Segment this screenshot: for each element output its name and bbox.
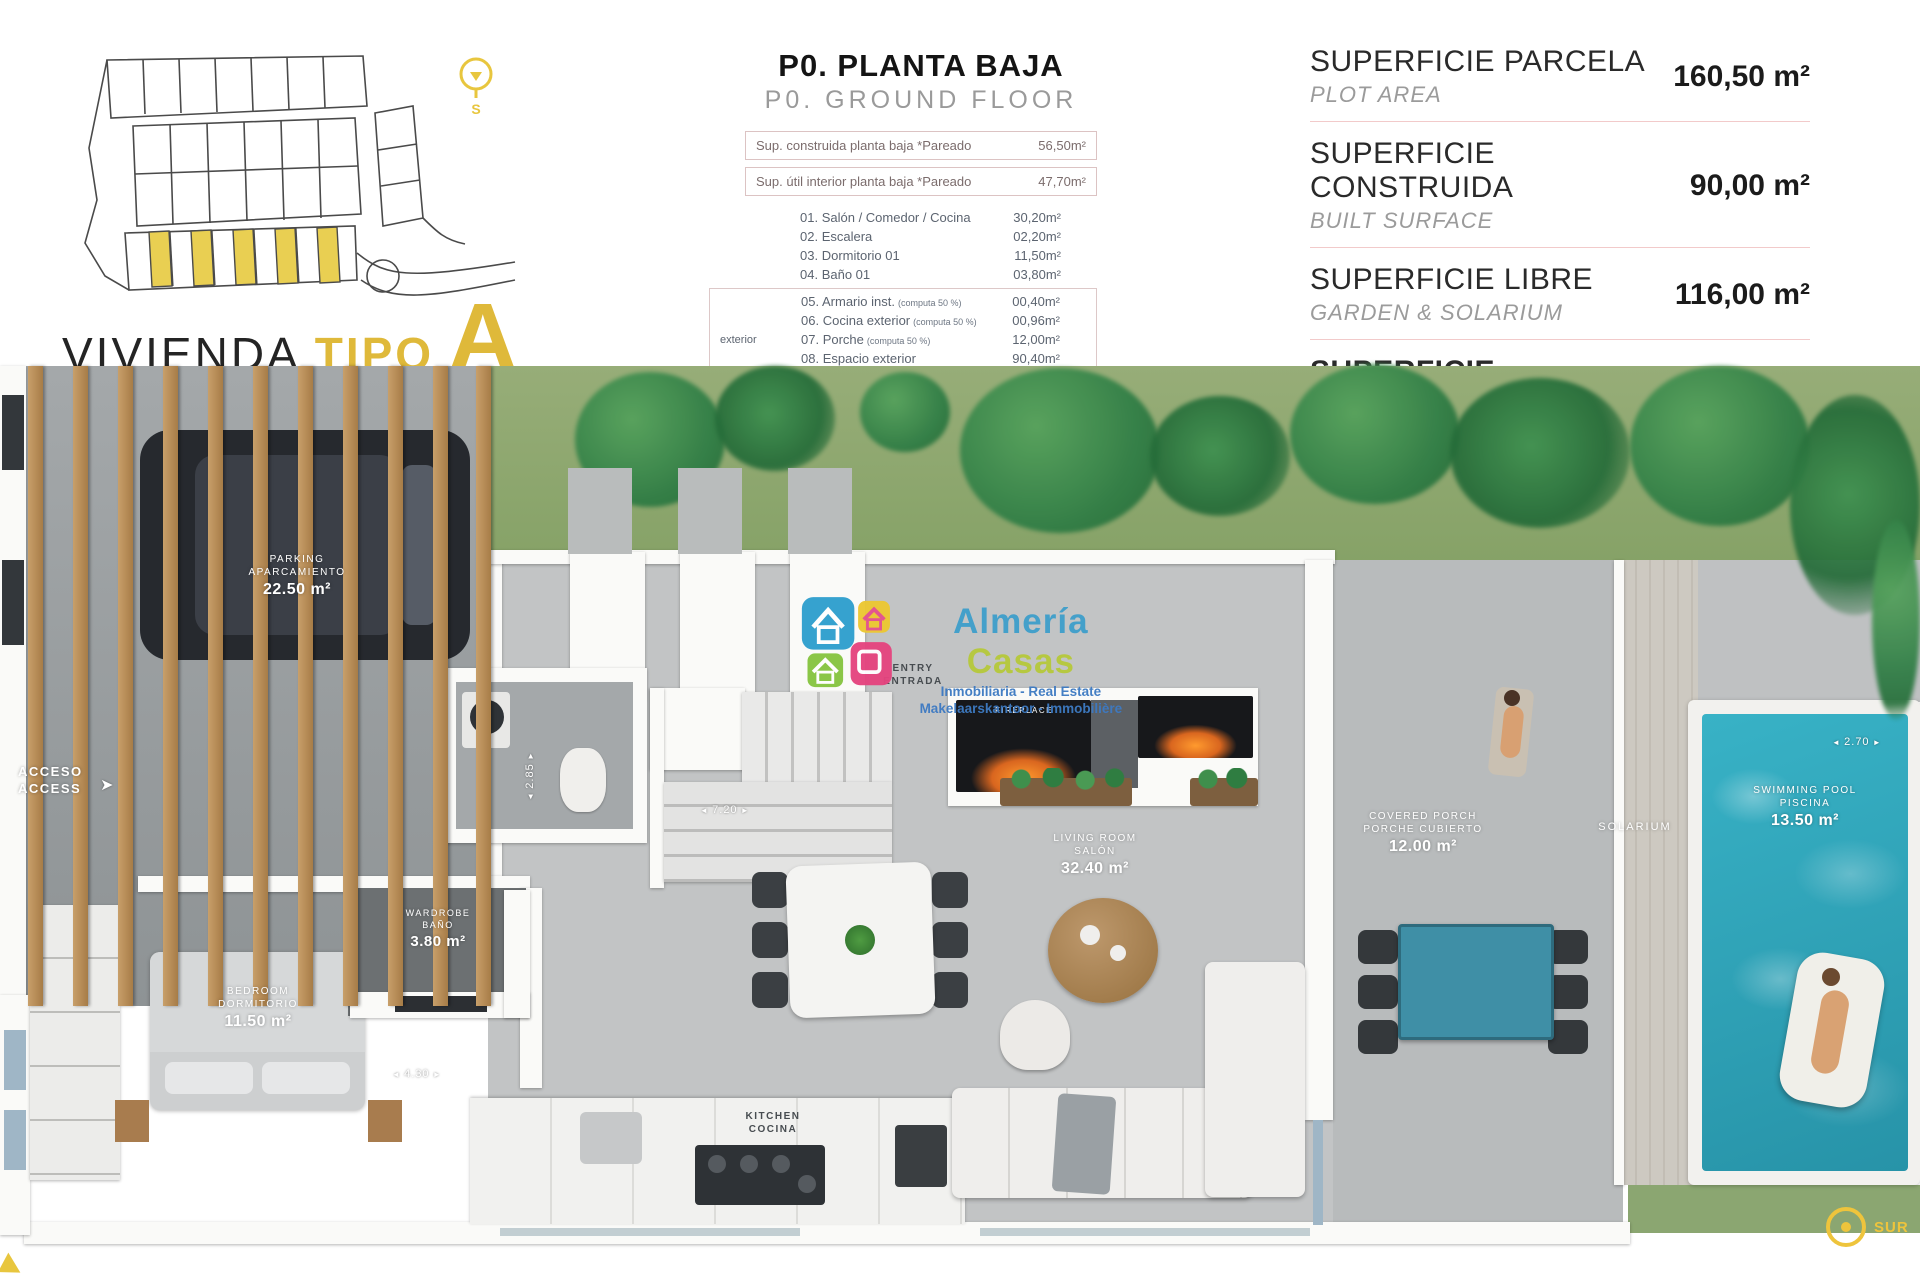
sofa-chaise (1205, 962, 1305, 1197)
dim-bedroom: 4.30 (392, 1068, 442, 1080)
toilet (560, 748, 606, 812)
lounge-chair (1000, 1000, 1070, 1070)
door-opening (2, 560, 24, 645)
solarium-label: SOLARIUM (1580, 820, 1690, 834)
entry-pad (788, 468, 852, 554)
access-arrow-icon: ➤ (100, 775, 113, 795)
room-row: 04. Baño 01 03,80m² (745, 265, 1097, 284)
tree (960, 368, 1160, 533)
pillow (262, 1062, 350, 1094)
room-row: 06. Cocina exterior(computa 50 %) 00,96m… (746, 311, 1096, 330)
entry-pad (568, 468, 632, 554)
pergola-slat (343, 366, 358, 1006)
summary-boxes: Sup. construida planta baja *Pareado 56,… (745, 131, 1097, 196)
wardrobe-label: WARDROBE BAÑO 3.80 m² (378, 908, 498, 952)
tree (1630, 366, 1810, 526)
kitchen-label: KITCHEN COCINA (728, 1110, 818, 1136)
pool-label: SWIMMING POOL PISCINA 13.50 m² (1735, 784, 1875, 832)
round-table (1048, 898, 1158, 1003)
bedroom-label: BEDROOM DORMITORIO 11.50 m² (178, 985, 338, 1033)
room-list: 01. Salón / Comedor / Cocina 30,20m² 02.… (745, 208, 1097, 392)
pillow (165, 1062, 253, 1094)
pergola-slat (118, 366, 133, 1006)
dining-chair (752, 972, 788, 1008)
surface-row: SUPERFICIE PARCELA PLOT AREA 160,50 m² (1310, 30, 1810, 121)
solarium-floor (1623, 560, 1698, 1185)
sofa-throw (1052, 1093, 1117, 1195)
pergola-slat (73, 366, 88, 1006)
table-dish (1110, 945, 1126, 961)
pergola-slat (253, 366, 268, 1006)
tree (1872, 520, 1920, 720)
floor-title-es: P0. PLANTA BAJA (745, 48, 1097, 84)
wall-living-porch (1305, 560, 1333, 1120)
surface-row: SUPERFICIE LIBRE GARDEN & SOLARIUM 116,0… (1310, 248, 1810, 339)
summary-row: Sup. útil interior planta baja *Pareado … (745, 167, 1097, 196)
svg-text:S: S (471, 101, 480, 117)
table-plant (845, 925, 875, 955)
porch-chair (1548, 930, 1588, 964)
door-opening (2, 395, 24, 470)
room-row: 05. Armario inst.(computa 50 %) 00,40m² (746, 292, 1096, 311)
stairs-wall (650, 688, 745, 770)
sliding-door-glass (1313, 1120, 1323, 1225)
dim-pool: 2.70 (1832, 736, 1882, 748)
wall-bottom (24, 1222, 1630, 1244)
car-windshield (402, 465, 436, 625)
dining-chair (752, 872, 788, 908)
exterior-label: exterior (720, 334, 757, 346)
dining-chair (752, 922, 788, 958)
stairs-wall-left (650, 688, 664, 888)
fireplace-screen-2 (1138, 696, 1253, 758)
burner (798, 1175, 816, 1193)
burner (772, 1155, 790, 1173)
pool-water (1702, 714, 1908, 1171)
table-dish (1080, 925, 1100, 945)
tree (1150, 396, 1290, 516)
porch-chair (1358, 930, 1398, 964)
measurement-table: P0. PLANTA BAJA P0. GROUND FLOOR Sup. co… (745, 48, 1097, 392)
porch-floor (1333, 560, 1623, 1235)
compass-south: SUR (1826, 1204, 1920, 1250)
wall-pillar (680, 552, 755, 700)
compass-icon (1826, 1207, 1866, 1247)
dim-stairs: 7.20 (700, 804, 750, 816)
access-label: ACCESO ACCESS (18, 764, 108, 798)
porch-chair (1548, 1020, 1588, 1054)
tree (860, 372, 950, 452)
wall-porch-solarium (1614, 560, 1624, 1185)
planter-plants (1002, 768, 1130, 790)
pergola-slat (28, 366, 43, 1006)
porch-label: COVERED PORCH PORCHE CUBIERTO 12.00 m² (1338, 810, 1508, 858)
compass-label: SUR (1874, 1219, 1909, 1236)
almeria-casas-logo (800, 592, 894, 696)
tree (1290, 364, 1460, 504)
watermark-text: Almería Casas Inmobiliaria - Real Estate… (902, 592, 1140, 712)
brochure-page: S VIVIENDA TIPO A P0. PLANTA BAJA P0. GR… (0, 0, 1920, 1280)
room-row: 07. Porche(computa 50 %) 12,00m² (746, 330, 1096, 349)
porch-table (1398, 924, 1554, 1040)
dining-chair (932, 872, 968, 908)
porch-chair (1548, 975, 1588, 1009)
entry-pad (678, 468, 742, 554)
watermark: Almería Casas Inmobiliaria - Real Estate… (800, 592, 1140, 712)
room-row: 02. Escalera 02,20m² (745, 227, 1097, 246)
nightstand (115, 1100, 149, 1142)
parking-label: PARKING APARCAMIENTO 22.50 m² (222, 553, 372, 601)
floor-title-en: P0. GROUND FLOOR (745, 86, 1097, 115)
porch-chair (1358, 975, 1398, 1009)
side-table (895, 1125, 947, 1187)
pergola-slat (163, 366, 178, 1006)
surface-row: SUPERFICIE CONSTRUIDA BUILT SURFACE 90,0… (1310, 122, 1810, 247)
wardrobe-counter-side (504, 890, 530, 1018)
room-row: 01. Salón / Comedor / Cocina 30,20m² (745, 208, 1097, 227)
planter-plants (1192, 768, 1256, 790)
window-glass (980, 1228, 1310, 1236)
tree (1450, 378, 1630, 528)
window-glass (500, 1228, 800, 1236)
window-glass (4, 1030, 26, 1090)
streetlight-icon: S (446, 48, 506, 128)
float-person-head (1822, 968, 1840, 986)
corner-arrow-icon (0, 1253, 26, 1280)
dim-bath: 2.85 (524, 751, 536, 801)
window-glass (4, 1110, 26, 1170)
nightstand (368, 1100, 402, 1142)
tree (715, 366, 835, 471)
kitchen-sink (580, 1112, 642, 1164)
dining-chair (932, 922, 968, 958)
burner (740, 1155, 758, 1173)
pergola-slat (208, 366, 223, 1006)
room-row: 03. Dormitorio 01 11,50m² (745, 246, 1097, 265)
summary-row: Sup. construida planta baja *Pareado 56,… (745, 131, 1097, 160)
person-head (1504, 690, 1520, 706)
porch-chair (1358, 1020, 1398, 1054)
pergola-slat (298, 366, 313, 1006)
living-label: LIVING ROOM SALÓN 32.40 m² (1020, 832, 1170, 880)
burner (708, 1155, 726, 1173)
dining-chair (932, 972, 968, 1008)
